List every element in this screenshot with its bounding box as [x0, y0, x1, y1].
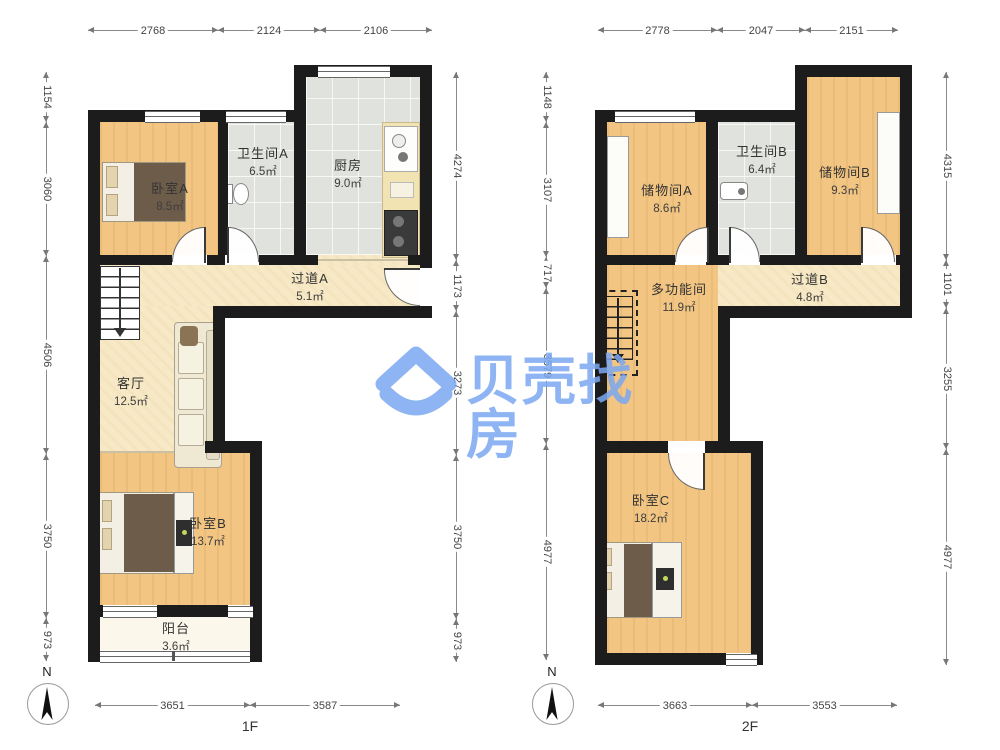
- dimension-line: 973: [46, 618, 47, 661]
- dimension-line: 4274: [456, 72, 457, 260]
- dimension-value: 2047: [746, 25, 776, 37]
- door-leaf: [861, 227, 863, 263]
- dimension-line: 1173: [456, 260, 457, 311]
- dimension-value: 3587: [310, 700, 340, 712]
- dimension-value: 3750: [41, 521, 53, 551]
- dimension-line: 1148: [546, 72, 547, 122]
- wall: [88, 110, 100, 662]
- window: [145, 111, 200, 123]
- bedroom-c-label: 卧室C 18.2㎡: [632, 490, 670, 526]
- door-leaf: [703, 453, 705, 490]
- dimension-line: 3060: [46, 122, 47, 256]
- tv-power-dot: [182, 530, 187, 535]
- room-area: 6.5㎡: [237, 163, 289, 179]
- dimension-line: 2151: [805, 30, 898, 31]
- sofa-cushion: [178, 342, 204, 374]
- window: [615, 111, 695, 123]
- room-name: 过道A: [291, 268, 329, 287]
- dimension-line: 2047: [717, 30, 805, 31]
- dimension-line: 3107: [546, 122, 547, 257]
- wall: [795, 65, 912, 77]
- dimension-value: 1101: [941, 269, 953, 299]
- wall: [896, 255, 912, 265]
- dimension-value: 1148: [541, 82, 553, 112]
- washbasin-drain: [738, 188, 745, 195]
- door-leaf: [729, 227, 731, 263]
- wall: [900, 77, 912, 318]
- wall: [157, 605, 228, 617]
- wall: [760, 255, 861, 265]
- dimension-value: 4977: [941, 542, 953, 572]
- door-leaf: [227, 227, 229, 263]
- dimension-value: 2106: [361, 25, 391, 37]
- door-leaf: [204, 227, 206, 263]
- sink-icon: [384, 126, 418, 172]
- dimension-line: 973: [456, 619, 457, 662]
- dimension-value: 973: [41, 627, 53, 651]
- pillow-icon: [102, 528, 112, 550]
- window: [318, 66, 390, 78]
- door-leaf: [707, 227, 709, 263]
- room-area: 9.3㎡: [819, 182, 871, 198]
- room-name: 储物间A: [641, 180, 693, 199]
- dimension-line: 3750: [456, 455, 457, 619]
- tv-power-dot: [663, 576, 668, 581]
- dimension-line: 4506: [46, 256, 47, 454]
- wall: [253, 605, 262, 617]
- dimension-value: 3255: [941, 363, 953, 393]
- dimension-line: 3750: [46, 454, 47, 618]
- cutting-board: [390, 182, 414, 198]
- room-area: 11.9㎡: [651, 299, 707, 315]
- bathroom-a-label: 卫生间A 6.5㎡: [237, 143, 289, 179]
- sofa-cushion: [178, 414, 204, 446]
- dimension-value: 2778: [642, 25, 672, 37]
- dimension-value: 3651: [157, 700, 187, 712]
- bedroom-a-label: 卧室A 8.5㎡: [151, 178, 189, 214]
- dimension-value: 1154: [41, 82, 53, 112]
- wall: [259, 255, 306, 265]
- room-name: 客厅: [114, 373, 148, 392]
- wall: [205, 441, 262, 453]
- dimension-line: 3255: [946, 308, 947, 449]
- room-area: 8.5㎡: [151, 198, 189, 214]
- storage-a-label: 储物间A 8.6㎡: [641, 180, 693, 216]
- door-leaf: [384, 268, 420, 270]
- room-area: 6.4㎡: [736, 161, 788, 177]
- dimension-value: 717: [541, 260, 553, 284]
- watermark-logo-icon: [370, 342, 462, 426]
- dimension-value: 2124: [254, 25, 284, 37]
- wall: [718, 306, 730, 453]
- room-name: 卧室B: [189, 513, 227, 532]
- wall: [420, 77, 432, 268]
- wall: [250, 453, 262, 662]
- multifunction-room-label: 多功能间 11.9㎡: [651, 279, 707, 315]
- sink-basin: [392, 134, 406, 148]
- dimension-line: 3553: [752, 705, 897, 706]
- room-name: 阳台: [162, 618, 190, 637]
- wall: [213, 306, 225, 441]
- bed-blanket: [124, 494, 174, 572]
- wall: [100, 255, 172, 265]
- watermark-text: 贝壳找房: [466, 354, 650, 462]
- wall: [607, 255, 675, 265]
- side-table-icon: [180, 326, 198, 346]
- dimension-value: 1173: [451, 271, 463, 301]
- room-name: 储物间B: [819, 162, 871, 181]
- dimension-line: 2124: [218, 30, 320, 31]
- wall: [408, 255, 420, 265]
- pillow-icon: [106, 166, 118, 188]
- toilet-icon: [233, 183, 249, 205]
- room-area: 5.1㎡: [291, 288, 329, 304]
- floor-plan-canvas: 2768 2124 2106 3651 3587 1154 3060 4506 …: [0, 0, 1000, 750]
- wall: [207, 255, 225, 265]
- dimension-value: 4506: [41, 340, 53, 370]
- floor-label-2f: 2F: [742, 718, 758, 734]
- wall: [757, 653, 763, 665]
- dimension-line: 2768: [88, 30, 218, 31]
- room-name: 卫生间B: [736, 141, 788, 160]
- dimension-line: 717: [546, 257, 547, 288]
- dimension-line: 4977: [546, 444, 547, 660]
- dimension-line: 3663: [598, 705, 752, 706]
- dimension-line: 3651: [95, 705, 250, 706]
- wall: [795, 65, 807, 265]
- room-name: 卫生间A: [237, 143, 289, 162]
- wall: [294, 65, 306, 122]
- room-area: 12.5㎡: [114, 393, 148, 409]
- pillow-icon: [102, 500, 112, 522]
- wall: [595, 653, 726, 665]
- watermark: 贝壳找房: [370, 340, 650, 426]
- burner-icon: [393, 236, 404, 247]
- wall: [705, 441, 763, 453]
- dimension-value: 3750: [451, 522, 463, 552]
- dimension-value: 4315: [941, 151, 953, 181]
- dimension-line: 1154: [46, 72, 47, 122]
- dimension-line: 4977: [946, 449, 947, 665]
- hallway-b-label: 过道B 4.8㎡: [791, 269, 829, 305]
- dimension-line: 2106: [320, 30, 432, 31]
- wall: [751, 453, 763, 665]
- room-name: 卧室C: [632, 490, 670, 509]
- sink-basin: [398, 152, 408, 162]
- wall: [710, 255, 729, 265]
- wall: [294, 122, 306, 265]
- bathroom-b-label: 卫生间B 6.4㎡: [736, 141, 788, 177]
- wall: [215, 306, 432, 318]
- dimension-value: 4274: [451, 151, 463, 181]
- dimension-line: 4315: [946, 72, 947, 260]
- wardrobe-icon: [877, 112, 900, 214]
- stairs-direction-line: [119, 268, 121, 328]
- room-area: 4.8㎡: [791, 289, 829, 305]
- wall: [730, 306, 912, 318]
- threshold-line: [318, 259, 408, 261]
- dimension-value: 4977: [541, 537, 553, 567]
- room-area: 18.2㎡: [632, 510, 670, 526]
- balcony-label: 阳台 3.6㎡: [162, 618, 190, 654]
- room-area: 3.6㎡: [162, 638, 190, 654]
- dimension-value: 3553: [809, 700, 839, 712]
- dimension-value: 3060: [41, 174, 53, 204]
- stairs-down-arrow: [114, 328, 126, 337]
- bed-blanket: [624, 544, 652, 617]
- north-label: N: [37, 664, 57, 679]
- dimension-line: 3587: [250, 705, 400, 706]
- north-label: N: [542, 664, 562, 679]
- storage-b-label: 储物间B 9.3㎡: [819, 162, 871, 198]
- dimension-line: 1101: [946, 260, 947, 308]
- room-area: 9.0㎡: [334, 175, 362, 191]
- wall: [250, 650, 262, 662]
- floor-label-1f: 1F: [242, 718, 258, 734]
- room-name: 卧室A: [151, 178, 189, 197]
- hallway-a-floor: [100, 265, 420, 306]
- room-area: 8.6㎡: [641, 200, 693, 216]
- dimension-line: 2778: [598, 30, 717, 31]
- pillow-icon: [106, 194, 118, 216]
- room-name: 多功能间: [651, 279, 707, 298]
- bedroom-b-label: 卧室B 13.7㎡: [189, 513, 227, 549]
- room-area: 13.7㎡: [189, 533, 227, 549]
- dimension-value: 973: [451, 628, 463, 652]
- room-name: 过道B: [791, 269, 829, 288]
- dimension-value: 3663: [660, 700, 690, 712]
- wall: [306, 255, 318, 265]
- window: [103, 606, 157, 618]
- wall: [88, 605, 103, 617]
- dimension-value: 2768: [138, 25, 168, 37]
- hallway-a-label: 过道A 5.1㎡: [291, 268, 329, 304]
- living-room-label: 客厅 12.5㎡: [114, 373, 148, 409]
- burner-icon: [393, 216, 404, 227]
- window: [228, 606, 253, 618]
- dimension-value: 3107: [541, 174, 553, 204]
- window: [226, 111, 286, 123]
- room-name: 厨房: [334, 155, 362, 174]
- window: [726, 654, 757, 666]
- sofa-cushion: [178, 378, 204, 410]
- dimension-value: 2151: [836, 25, 866, 37]
- wardrobe-icon: [607, 136, 629, 238]
- kitchen-label: 厨房 9.0㎡: [334, 155, 362, 191]
